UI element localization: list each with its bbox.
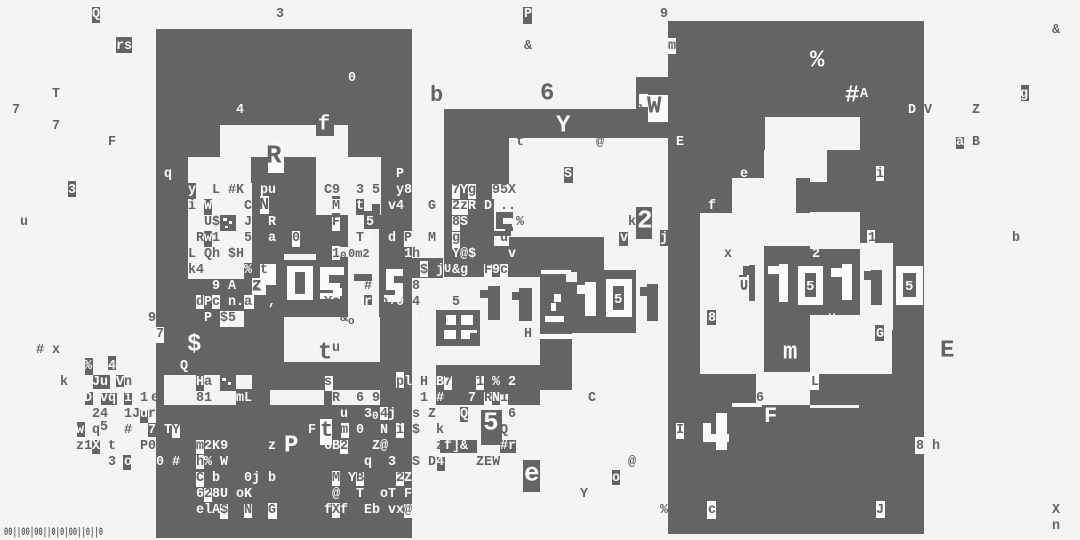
svg-text:%: %: [204, 455, 213, 470]
svg-text:7: 7: [468, 391, 476, 406]
svg-text:g: g: [468, 183, 476, 198]
svg-text:Y: Y: [172, 423, 181, 438]
svg-text:0: 0: [340, 251, 347, 263]
svg-text:f: f: [324, 503, 332, 518]
svg-text:1: 1: [420, 391, 428, 406]
svg-text:x: x: [52, 343, 60, 358]
svg-text:8U: 8U: [212, 487, 228, 502]
svg-text:i: i: [188, 199, 196, 214]
svg-text:D: D: [484, 199, 492, 214]
svg-text:Yc0: Yc0: [324, 295, 348, 310]
svg-text:vx: vx: [388, 503, 404, 518]
svg-text:C9: C9: [324, 183, 340, 198]
svg-text:d: d: [388, 231, 396, 246]
svg-text:$: $: [228, 247, 236, 262]
svg-text:%: %: [84, 359, 93, 374]
svg-text:h: h: [412, 247, 420, 262]
svg-text:0: 0: [356, 423, 364, 438]
svg-text:N: N: [492, 391, 500, 406]
svg-text:5: 5: [340, 215, 348, 230]
svg-text:J: J: [364, 231, 372, 246]
svg-text:1: 1: [332, 247, 340, 262]
svg-text:o: o: [380, 295, 388, 310]
svg-text:F: F: [484, 263, 492, 278]
svg-text:3: 3: [276, 7, 284, 22]
svg-text:%: %: [516, 215, 525, 230]
svg-text:L: L: [212, 183, 220, 198]
svg-text:1: 1: [476, 375, 484, 390]
svg-text:F: F: [308, 423, 316, 438]
svg-text:6: 6: [756, 391, 764, 406]
svg-text:g: g: [1020, 87, 1028, 102]
svg-text:3: 3: [364, 407, 372, 422]
svg-text:@: @: [404, 503, 412, 518]
svg-text:r: r: [364, 295, 372, 310]
svg-text:l: l: [404, 375, 412, 390]
svg-text:J: J: [876, 503, 884, 518]
svg-text:%: %: [810, 47, 825, 74]
svg-text:2: 2: [452, 199, 460, 214]
svg-text:S: S: [412, 455, 420, 470]
svg-text:a: a: [956, 135, 964, 150]
svg-text:..: ..: [500, 199, 516, 214]
svg-text:F: F: [332, 215, 340, 230]
svg-text:%: %: [244, 263, 253, 278]
svg-text:R: R: [332, 391, 341, 406]
svg-text:B: B: [972, 135, 980, 150]
svg-text:6B: 6B: [324, 439, 340, 454]
svg-text:m: m: [783, 339, 797, 366]
svg-text:g: g: [452, 231, 460, 246]
svg-text:N: N: [244, 503, 252, 518]
svg-text:Z: Z: [428, 407, 436, 422]
svg-text:f: f: [340, 503, 348, 518]
svg-text:u: u: [20, 215, 28, 230]
svg-text:h: h: [932, 439, 940, 454]
svg-text:R: R: [468, 199, 477, 214]
svg-text:Q: Q: [460, 407, 468, 422]
svg-text:q: q: [364, 455, 372, 470]
svg-text:T: T: [164, 423, 172, 438]
svg-text:Y: Y: [580, 487, 589, 502]
svg-text:b: b: [1012, 231, 1020, 246]
svg-text:0: 0: [348, 71, 356, 86]
svg-text:d: d: [140, 407, 148, 422]
svg-text:%: %: [396, 396, 402, 407]
svg-text:t: t: [318, 339, 332, 366]
svg-text:P: P: [204, 295, 212, 310]
svg-text:u: u: [332, 341, 340, 356]
svg-text:Y@$: Y@$: [452, 247, 476, 262]
svg-text:W: W: [204, 199, 213, 214]
svg-text:1: 1: [140, 391, 148, 406]
svg-text:b: b: [212, 471, 220, 486]
svg-text:H: H: [420, 375, 428, 390]
svg-text:0: 0: [372, 411, 379, 423]
svg-text:8: 8: [452, 215, 460, 230]
svg-text:7: 7: [52, 119, 60, 134]
svg-text:G: G: [268, 503, 276, 518]
svg-text:X: X: [468, 439, 477, 454]
svg-text:el: el: [196, 503, 212, 518]
svg-text:t: t: [260, 263, 268, 278]
svg-text:A: A: [860, 87, 869, 102]
svg-text:N: N: [380, 423, 388, 438]
svg-text:Y: Y: [556, 112, 571, 139]
svg-text:k: k: [628, 215, 636, 230]
svg-text:L: L: [188, 247, 196, 262]
svg-text:U: U: [740, 279, 748, 294]
svg-text:B: B: [436, 375, 444, 390]
svg-text:7: 7: [148, 423, 156, 438]
svg-text:X: X: [508, 183, 517, 198]
svg-text:9: 9: [492, 263, 500, 278]
svg-text:P: P: [396, 167, 404, 182]
svg-text:q: q: [164, 167, 172, 182]
svg-text:4: 4: [380, 407, 388, 422]
svg-text:m: m: [340, 423, 348, 438]
svg-text:,: ,: [268, 295, 276, 310]
svg-text:ZEW: ZEW: [476, 455, 501, 470]
svg-text:t: t: [516, 135, 524, 150]
svg-text:I: I: [676, 423, 684, 438]
svg-text:5: 5: [806, 279, 814, 295]
svg-text:H: H: [196, 375, 204, 390]
svg-text:C: C: [196, 471, 204, 486]
svg-text:e: e: [524, 459, 540, 489]
svg-text:r: r: [148, 407, 156, 422]
svg-text:b: b: [430, 83, 443, 108]
svg-text:6: 6: [540, 80, 554, 107]
svg-text:U: U: [444, 262, 451, 276]
svg-text:5: 5: [614, 292, 622, 308]
svg-text:u: u: [340, 407, 348, 422]
svg-text:H: H: [524, 327, 532, 342]
svg-text:V: V: [924, 103, 933, 118]
svg-text:T: T: [356, 231, 364, 246]
svg-text:H: H: [236, 247, 244, 262]
svg-text:v: v: [620, 231, 628, 246]
svg-text:z: z: [436, 439, 444, 454]
svg-text:j: j: [660, 231, 668, 246]
svg-text:F: F: [404, 487, 412, 502]
svg-text:$5: $5: [220, 311, 236, 326]
svg-text:N: N: [259, 196, 269, 215]
svg-text:C: C: [244, 199, 252, 214]
svg-text:81: 81: [196, 391, 212, 406]
svg-text:P: P: [524, 7, 532, 22]
svg-text:i: i: [396, 423, 404, 438]
svg-text:Q: Q: [500, 423, 508, 438]
svg-text:e: e: [740, 167, 748, 182]
svg-text:G: G: [428, 199, 436, 214]
svg-text:T: T: [52, 87, 60, 102]
svg-text:X: X: [1052, 503, 1061, 518]
svg-text:9: 9: [148, 311, 156, 326]
svg-text:+0: +0: [388, 295, 404, 310]
svg-text:R: R: [268, 215, 277, 230]
svg-text:s: s: [324, 375, 332, 390]
svg-text:4: 4: [236, 103, 244, 118]
svg-text:@: @: [628, 455, 636, 470]
svg-text:d: d: [196, 295, 204, 310]
svg-text:4: 4: [412, 295, 420, 310]
svg-text:u: u: [500, 231, 508, 246]
svg-text:C: C: [588, 391, 596, 406]
svg-text:vq: vq: [100, 391, 116, 406]
svg-text:i: i: [876, 167, 884, 182]
svg-text:8: 8: [708, 311, 716, 326]
svg-text:g: g: [460, 263, 468, 278]
svg-text:o: o: [124, 455, 132, 470]
svg-text:3: 3: [388, 455, 396, 470]
svg-text:2: 2: [204, 487, 212, 502]
svg-text:a: a: [204, 375, 212, 390]
svg-text:2: 2: [396, 471, 404, 486]
svg-text:#K: #K: [228, 183, 245, 198]
svg-text:s: s: [412, 407, 420, 422]
svg-text:0m2: 0m2: [348, 247, 370, 261]
svg-text:z: z: [268, 439, 276, 454]
svg-text:Z@: Z@: [372, 439, 388, 454]
svg-text:h: h: [196, 455, 204, 470]
svg-text:B: B: [356, 471, 364, 486]
svg-text:i: i: [124, 391, 132, 406]
svg-text:5: 5: [372, 183, 380, 198]
svg-text:@: @: [596, 135, 604, 150]
svg-text:9: 9: [660, 7, 668, 22]
svg-text:a: a: [244, 295, 252, 310]
svg-text:p: p: [396, 375, 404, 390]
svg-text:2: 2: [812, 247, 820, 262]
svg-text:%: %: [492, 375, 501, 390]
svg-text:rs: rs: [116, 39, 132, 54]
svg-text:7: 7: [444, 375, 452, 390]
svg-text:f: f: [318, 113, 330, 136]
svg-text:5: 5: [452, 295, 460, 310]
svg-text:6: 6: [356, 391, 364, 406]
svg-text:Z: Z: [404, 471, 412, 486]
svg-text:n: n: [636, 102, 643, 114]
svg-text:n: n: [1052, 519, 1060, 534]
svg-text:T: T: [356, 487, 364, 502]
svg-text:#: #: [436, 391, 444, 406]
svg-text:Eb: Eb: [364, 503, 380, 518]
svg-text:J: J: [244, 215, 252, 230]
svg-text:E: E: [940, 337, 954, 364]
svg-text:o: o: [348, 316, 355, 328]
svg-text:M: M: [332, 471, 340, 486]
svg-text:0j: 0j: [244, 471, 260, 486]
svg-text:5: 5: [905, 279, 913, 295]
svg-text:L: L: [811, 375, 819, 390]
svg-text:D: D: [428, 455, 436, 470]
svg-text:#: #: [364, 279, 372, 294]
svg-text:j: j: [436, 263, 444, 278]
svg-text:v4: v4: [388, 199, 404, 214]
svg-text:D: D: [84, 391, 92, 406]
svg-text:&: &: [412, 311, 420, 326]
svg-text:oK: oK: [236, 487, 253, 502]
svg-text:7: 7: [156, 327, 164, 342]
svg-text:#: #: [845, 82, 859, 109]
svg-text:m: m: [196, 439, 204, 454]
svg-text:@: @: [332, 487, 340, 502]
svg-text:F: F: [764, 404, 777, 429]
svg-text:2: 2: [252, 279, 260, 294]
svg-text:1: 1: [500, 391, 508, 406]
svg-text:&: &: [460, 439, 468, 454]
svg-text:58: 58: [404, 279, 420, 294]
svg-text:E: E: [676, 135, 684, 150]
svg-text:&: &: [452, 263, 460, 278]
svg-text:P: P: [204, 311, 212, 326]
svg-text:6: 6: [196, 487, 204, 502]
svg-text:c: c: [500, 263, 508, 278]
svg-text:M: M: [332, 199, 340, 214]
svg-text:mL: mL: [236, 391, 252, 406]
svg-text:x: x: [724, 247, 732, 262]
svg-text:5: 5: [366, 215, 374, 230]
svg-text:9: 9: [372, 391, 380, 406]
svg-text:c: c: [212, 295, 220, 310]
svg-text:$: $: [220, 503, 228, 518]
svg-text:#r: #r: [500, 439, 516, 454]
svg-text:3: 3: [68, 183, 76, 198]
svg-text:c: c: [708, 503, 716, 518]
svg-text:1: 1: [868, 231, 876, 246]
svg-text:b: b: [268, 471, 276, 486]
svg-text:t: t: [108, 439, 116, 454]
svg-text:6: 6: [508, 407, 516, 422]
svg-text:k: k: [436, 423, 444, 438]
svg-text:5: 5: [500, 183, 508, 198]
svg-text:W: W: [220, 455, 229, 470]
svg-text:n.: n.: [228, 295, 244, 310]
svg-text:w: w: [76, 423, 84, 438]
svg-text:A: A: [228, 279, 237, 294]
svg-text:U$: U$: [204, 215, 220, 230]
svg-text:v: v: [508, 247, 516, 262]
svg-text:o: o: [612, 471, 620, 486]
svg-text:P: P: [284, 432, 298, 459]
svg-text:a: a: [268, 231, 276, 246]
svg-text:9: 9: [492, 183, 500, 198]
svg-text:X: X: [92, 439, 101, 454]
svg-text:z1: z1: [76, 439, 92, 454]
svg-text:OI: OI: [388, 311, 404, 326]
svg-text:Z: Z: [972, 103, 980, 118]
svg-text:0: 0: [156, 455, 164, 470]
svg-text:G: G: [876, 327, 884, 342]
svg-text:#: #: [124, 423, 132, 438]
svg-text:j: j: [388, 407, 396, 422]
svg-text:1: 1: [404, 247, 412, 262]
svg-text:y: y: [188, 183, 196, 198]
svg-text:Q: Q: [92, 7, 100, 22]
svg-text:2: 2: [508, 375, 516, 390]
svg-text:y8: y8: [396, 183, 412, 198]
svg-text:7: 7: [12, 103, 20, 118]
svg-text:z: z: [460, 199, 468, 214]
svg-text:#: #: [36, 343, 44, 358]
svg-text:5: 5: [483, 408, 499, 438]
svg-text:4: 4: [108, 359, 116, 374]
svg-text:$: $: [187, 331, 201, 358]
svg-text:P: P: [404, 231, 412, 246]
svg-text:Q: Q: [180, 359, 188, 374]
svg-text:%: %: [660, 503, 669, 518]
svg-text:&: &: [1052, 23, 1060, 38]
svg-text:m: m: [668, 39, 676, 54]
svg-text:oT: oT: [380, 487, 396, 502]
svg-text:q: q: [92, 423, 100, 438]
svg-text:$: $: [412, 423, 420, 438]
svg-text:Qh: Qh: [204, 247, 220, 262]
svg-text:9: 9: [212, 279, 220, 294]
svg-text:2K9: 2K9: [204, 439, 228, 454]
svg-text:&: &: [340, 311, 348, 326]
svg-text:t: t: [356, 199, 364, 214]
svg-text:4: 4: [436, 455, 444, 470]
svg-text:f: f: [708, 199, 716, 214]
svg-text:00||00|00||0|0|00||0||0: 00||00|00||0|0|00||0||0: [4, 527, 103, 539]
svg-text:e: e: [151, 391, 159, 406]
svg-text:1: 1: [212, 231, 220, 246]
svg-text:W: W: [647, 93, 662, 120]
svg-text:R: R: [266, 141, 282, 171]
svg-text:n: n: [124, 375, 132, 390]
svg-text:7: 7: [452, 183, 460, 198]
svg-text:S: S: [460, 215, 468, 230]
svg-text:$: $: [420, 263, 428, 278]
svg-text:u: u: [828, 311, 836, 326]
svg-text:k: k: [60, 375, 68, 390]
svg-text:w: w: [204, 231, 212, 246]
svg-text:5: 5: [100, 420, 108, 435]
svg-text:&: &: [524, 39, 532, 54]
svg-text:P0: P0: [140, 439, 156, 454]
svg-text:Ju: Ju: [92, 375, 108, 390]
svg-text:f]: f]: [444, 439, 460, 454]
svg-text:3: 3: [108, 455, 116, 470]
svg-text:3: 3: [356, 183, 364, 198]
svg-text:1J: 1J: [124, 407, 140, 422]
svg-text:2: 2: [637, 206, 653, 236]
svg-text:M: M: [428, 231, 436, 246]
svg-text:2: 2: [340, 439, 348, 454]
svg-text:0: 0: [292, 231, 300, 246]
svg-text:k4: k4: [188, 263, 204, 278]
svg-text:5: 5: [244, 231, 252, 246]
svg-text:#: #: [172, 455, 180, 470]
svg-text:F: F: [108, 135, 116, 150]
svg-text:S: S: [564, 167, 572, 182]
svg-text:S: S: [260, 391, 268, 406]
svg-text:8: 8: [916, 439, 924, 454]
svg-text:D: D: [908, 103, 916, 118]
